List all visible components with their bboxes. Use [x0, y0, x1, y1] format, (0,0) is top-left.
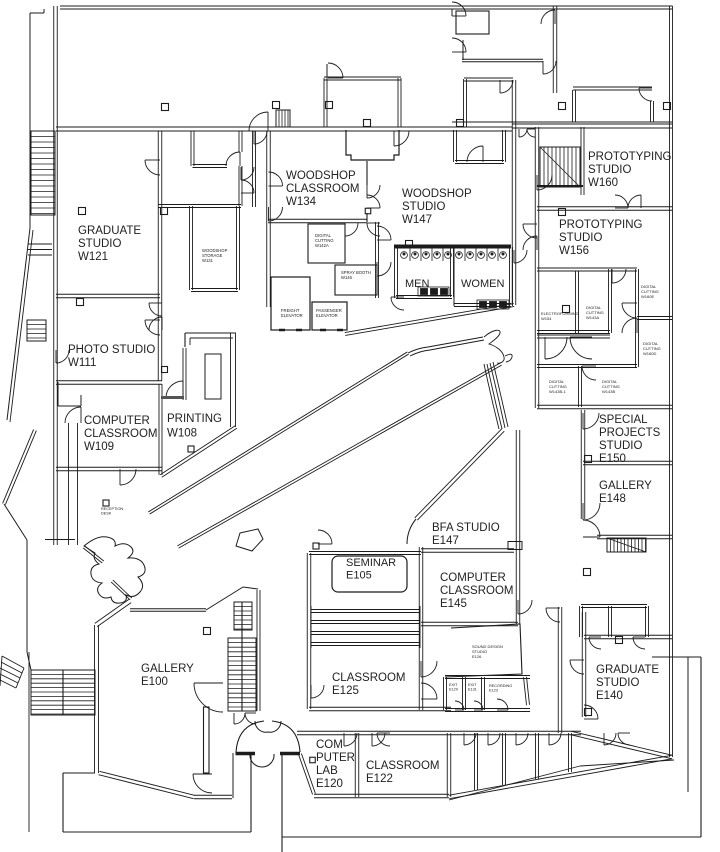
svg-text:RECEPTION: RECEPTION	[101, 507, 123, 511]
svg-text:RECORDING: RECORDING	[489, 684, 512, 688]
svg-text:WOMEN: WOMEN	[461, 278, 504, 290]
svg-text:E100: E100	[141, 676, 168, 688]
svg-text:E147: E147	[432, 535, 459, 547]
svg-text:STUDIO: STUDIO	[599, 440, 643, 452]
svg-text:STUDIO: STUDIO	[559, 232, 603, 244]
svg-text:EXIT: EXIT	[449, 683, 458, 687]
svg-text:E150: E150	[599, 453, 626, 465]
svg-text:W160E: W160E	[641, 294, 654, 299]
svg-text:W111: W111	[68, 357, 96, 369]
svg-text:E140: E140	[596, 690, 623, 702]
svg-text:LAB: LAB	[316, 765, 338, 777]
svg-text:GALLERY: GALLERY	[599, 480, 652, 492]
svg-text:W108: W108	[167, 428, 197, 440]
svg-text:PROTOTYPING: PROTOTYPING	[588, 151, 672, 163]
svg-text:PRINTING: PRINTING	[167, 413, 222, 425]
svg-text:E131: E131	[468, 688, 477, 692]
svg-text:STUDIO: STUDIO	[588, 164, 632, 176]
svg-text:W131: W131	[202, 258, 214, 263]
svg-text:ELEVATOR: ELEVATOR	[316, 313, 338, 318]
svg-text:W143B-1: W143B-1	[549, 389, 566, 394]
svg-text:PROJECTS: PROJECTS	[599, 427, 661, 439]
svg-text:COM: COM	[316, 739, 343, 751]
svg-text:E122: E122	[366, 773, 393, 785]
svg-text:PROTOTYPING: PROTOTYPING	[559, 219, 643, 231]
svg-text:ELEVATOR: ELEVATOR	[281, 313, 303, 318]
svg-text:COMPUTER: COMPUTER	[84, 415, 150, 427]
svg-text:E126: E126	[472, 654, 482, 659]
svg-text:E145: E145	[440, 598, 467, 610]
svg-text:COMPUTER: COMPUTER	[440, 572, 506, 584]
svg-text:STUDIO: STUDIO	[78, 238, 122, 250]
svg-text:CLASSROOM: CLASSROOM	[440, 585, 514, 597]
svg-text:W121: W121	[78, 251, 108, 263]
svg-text:W156: W156	[559, 245, 589, 257]
svg-text:E120: E120	[316, 778, 343, 790]
svg-text:GALLERY: GALLERY	[141, 663, 194, 675]
svg-text:PHOTO STUDIO: PHOTO STUDIO	[68, 344, 155, 356]
svg-text:E148: E148	[599, 493, 626, 505]
svg-text:PUTER: PUTER	[316, 752, 355, 764]
svg-text:WOODSHOP: WOODSHOP	[402, 188, 472, 200]
svg-text:CLASSROOM: CLASSROOM	[286, 183, 360, 195]
svg-text:STUDIO: STUDIO	[402, 201, 446, 213]
svg-text:DESK: DESK	[101, 512, 112, 516]
svg-text:W143A: W143A	[586, 315, 599, 320]
svg-text:W154: W154	[541, 316, 552, 321]
svg-text:E105: E105	[346, 570, 372, 582]
svg-text:WOODSHOP: WOODSHOP	[286, 170, 356, 182]
svg-text:GRADUATE: GRADUATE	[596, 664, 659, 676]
svg-text:E123: E123	[489, 689, 498, 693]
svg-text:W142A: W142A	[315, 243, 329, 248]
svg-text:STUDIO: STUDIO	[596, 677, 640, 689]
svg-text:W147: W147	[402, 214, 432, 226]
svg-text:W160D: W160D	[643, 351, 656, 356]
svg-text:EXIT: EXIT	[468, 683, 477, 687]
svg-text:W143B: W143B	[602, 389, 615, 394]
svg-text:GRADUATE: GRADUATE	[78, 225, 141, 237]
svg-text:CLASSROOM: CLASSROOM	[332, 672, 406, 684]
svg-text:W134: W134	[286, 196, 317, 208]
svg-text:CLASSROOM: CLASSROOM	[84, 428, 158, 440]
svg-text:W160: W160	[588, 177, 618, 189]
svg-text:CLASSROOM: CLASSROOM	[366, 760, 440, 772]
svg-text:W146: W146	[341, 275, 353, 280]
svg-text:SPECIAL: SPECIAL	[599, 414, 648, 426]
svg-text:E129: E129	[449, 688, 458, 692]
svg-text:E125: E125	[332, 685, 359, 697]
svg-text:W109: W109	[84, 441, 114, 453]
svg-text:BFA STUDIO: BFA STUDIO	[432, 522, 500, 534]
svg-text:SEMINAR: SEMINAR	[346, 557, 396, 569]
